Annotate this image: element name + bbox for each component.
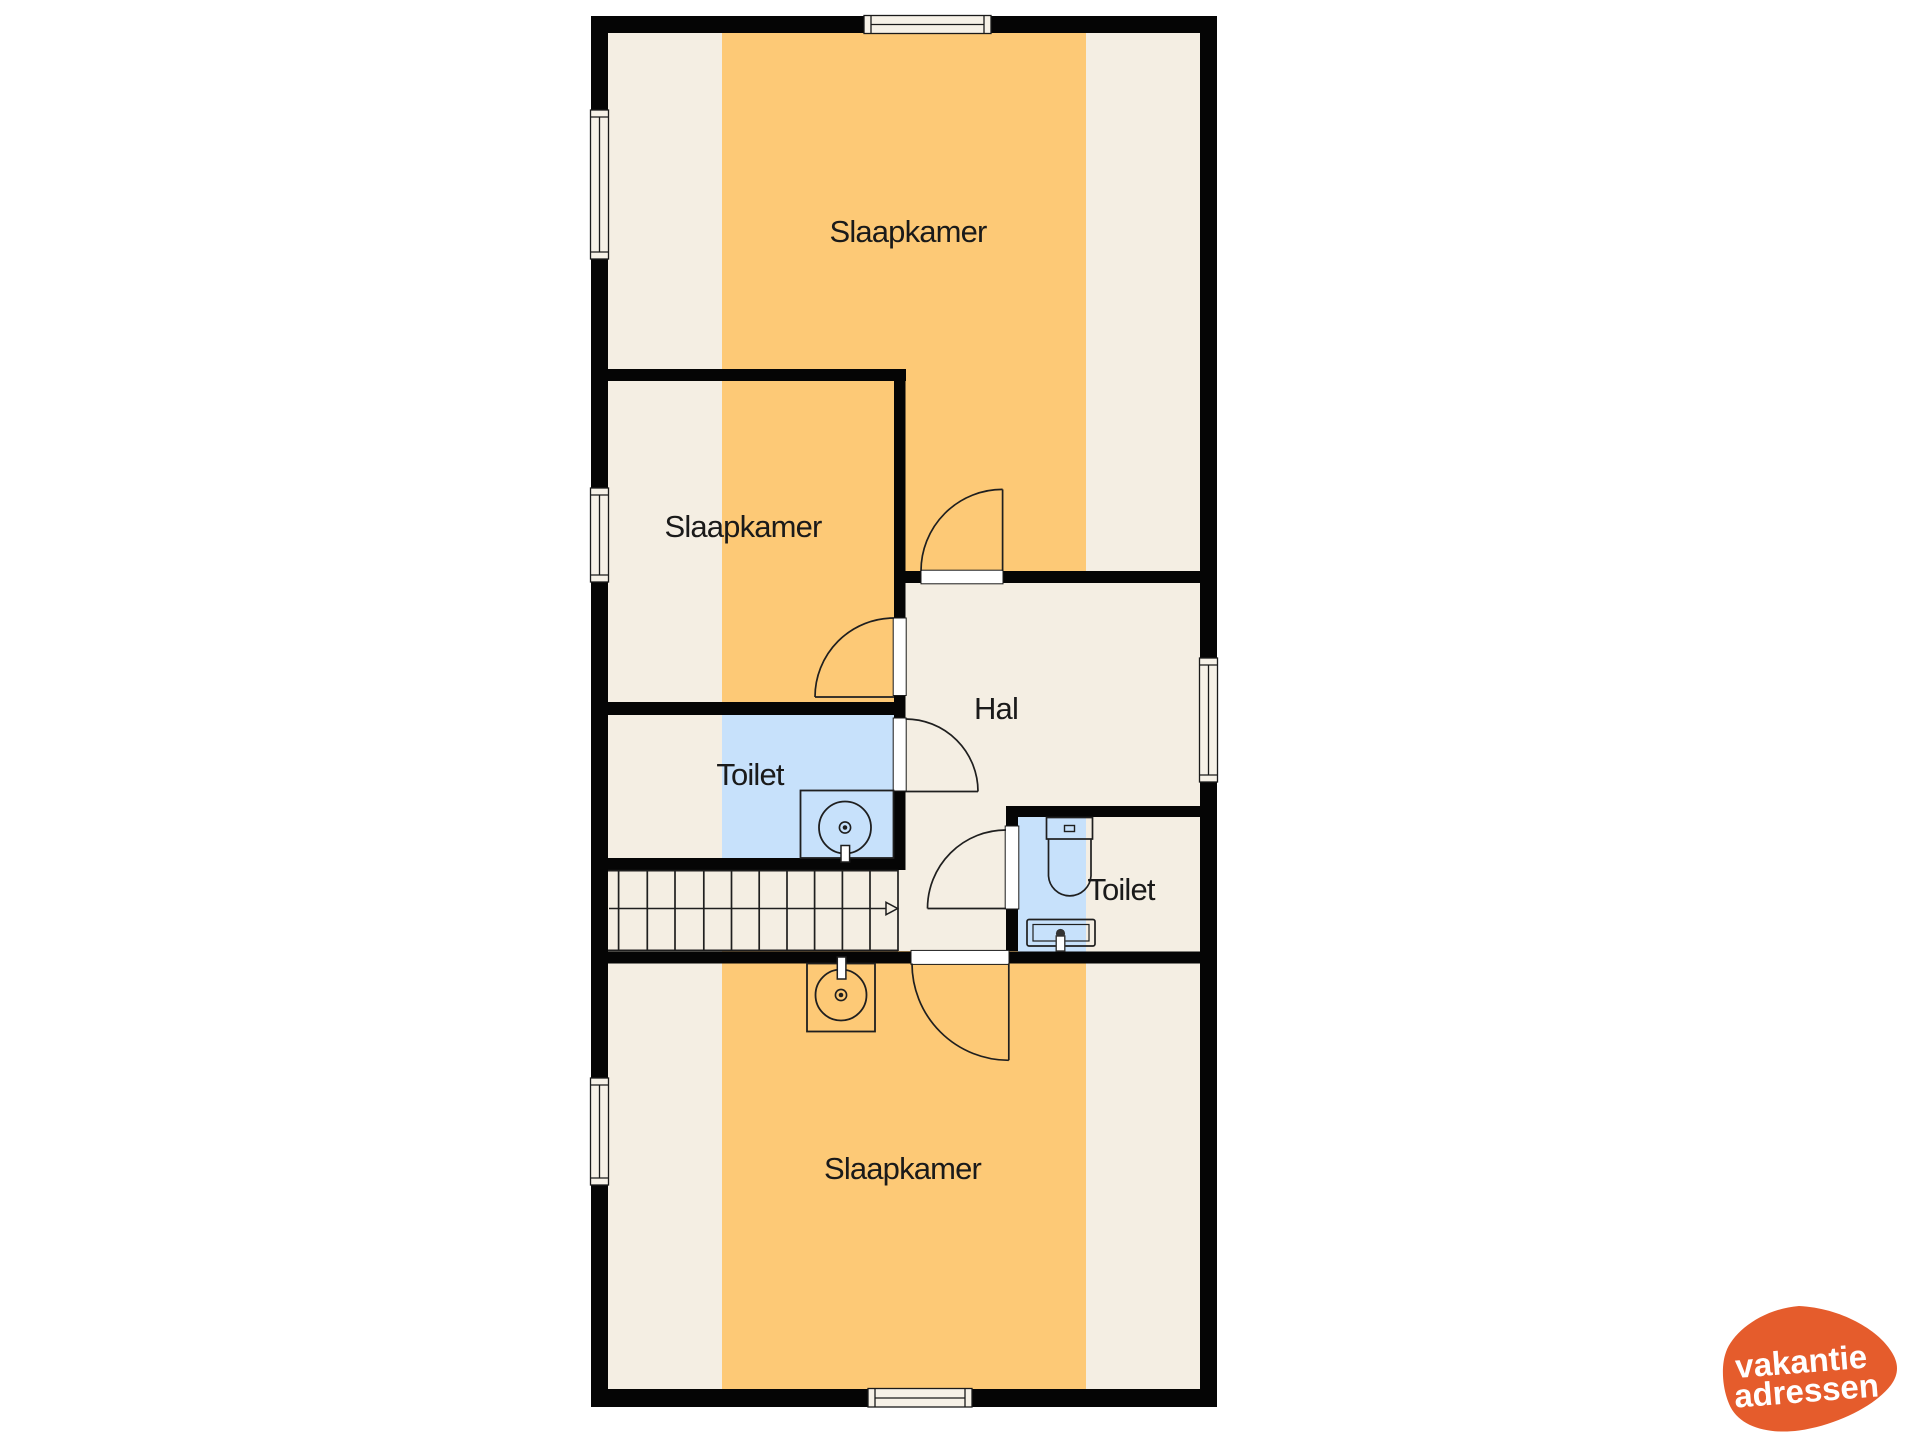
- svg-text:Slaapkamer: Slaapkamer: [830, 214, 987, 249]
- svg-text:Hal: Hal: [974, 691, 1018, 726]
- svg-text:Slaapkamer: Slaapkamer: [665, 509, 822, 544]
- svg-text:Slaapkamer: Slaapkamer: [824, 1151, 981, 1186]
- svg-text:Toilet: Toilet: [716, 757, 785, 792]
- svg-text:Toilet: Toilet: [1087, 872, 1156, 907]
